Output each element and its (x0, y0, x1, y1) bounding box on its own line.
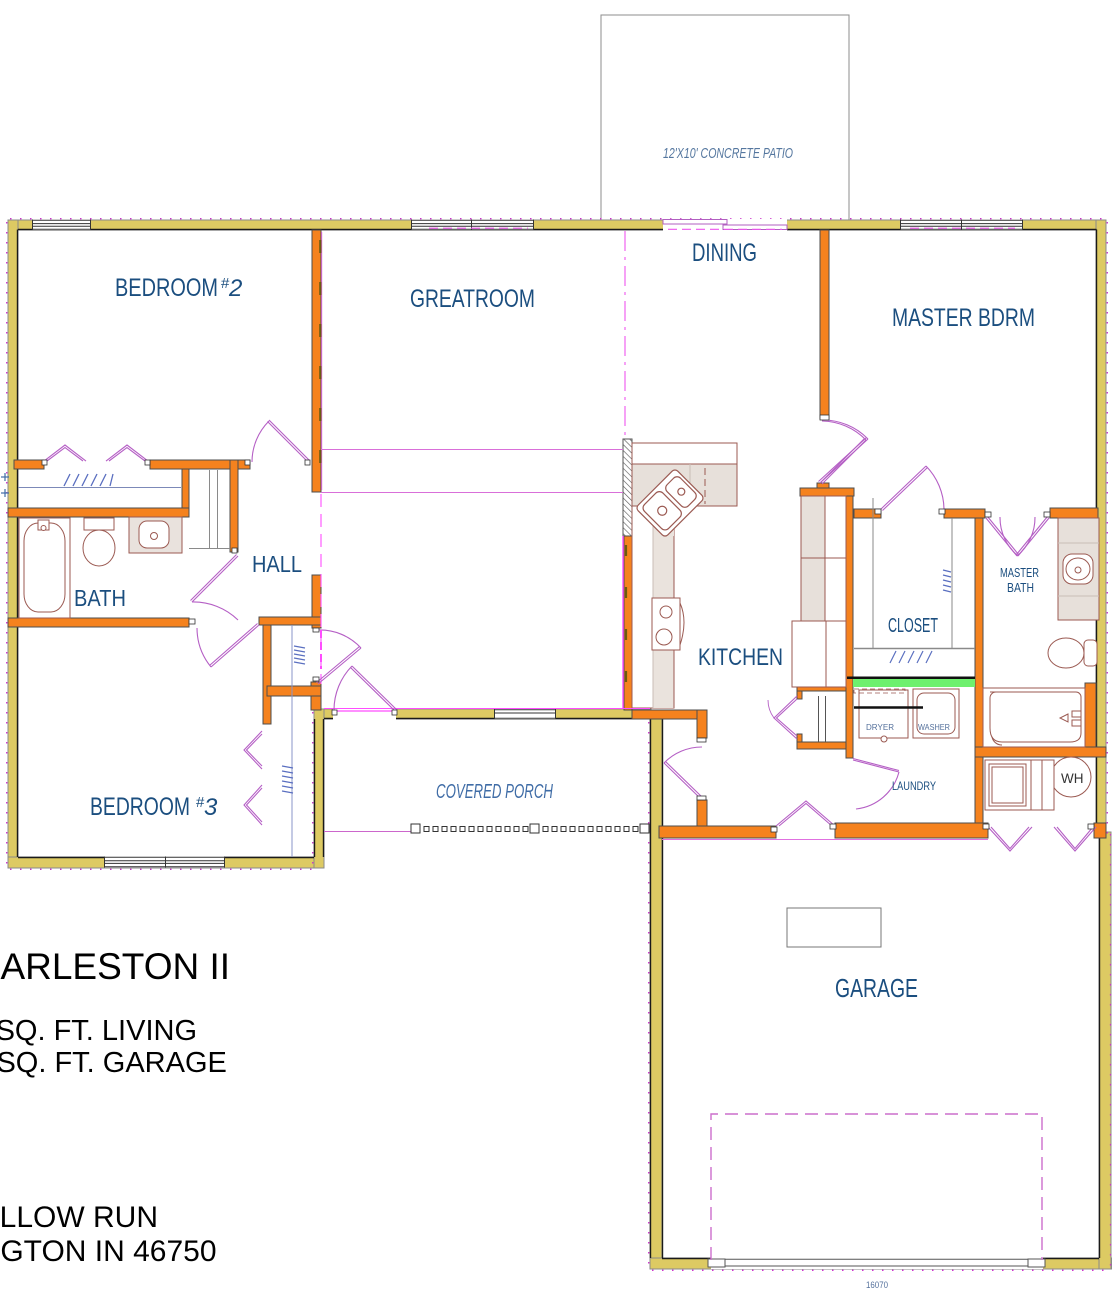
svg-text:CLOSET: CLOSET (888, 615, 938, 637)
svg-text:2: 2 (228, 275, 242, 302)
svg-text:1404 SQ. FT. LIVING: 1404 SQ. FT. LIVING (0, 1015, 197, 1047)
svg-text:BATH: BATH (1007, 580, 1034, 595)
svg-text:12'X10' CONCRETE PATIO: 12'X10' CONCRETE PATIO (663, 145, 793, 162)
svg-text:16070: 16070 (866, 1280, 888, 1291)
svg-text:KITCHEN: KITCHEN (698, 644, 783, 671)
svg-text:GARAGE: GARAGE (835, 973, 918, 1003)
svg-text:LAUNDRY: LAUNDRY (892, 779, 936, 793)
svg-text:WH: WH (1061, 771, 1084, 786)
svg-text:GREATROOM: GREATROOM (410, 285, 535, 313)
svg-text:BEDROOM: BEDROOM (115, 274, 218, 302)
svg-text:CHARLESTON II: CHARLESTON II (0, 946, 230, 987)
svg-text:HUNTINGTON IN 46750: HUNTINGTON IN 46750 (0, 1235, 217, 1268)
svg-text:DRYER: DRYER (866, 723, 894, 732)
svg-text:MASTER: MASTER (1000, 565, 1039, 580)
svg-text:DINING: DINING (692, 239, 757, 267)
svg-text:WILLOW RUN: WILLOW RUN (0, 1201, 158, 1234)
svg-text:BEDROOM: BEDROOM (90, 793, 190, 821)
svg-text:WASHER: WASHER (918, 723, 950, 732)
svg-text:COVERED PORCH: COVERED PORCH (436, 781, 553, 803)
svg-text:3: 3 (204, 794, 218, 821)
svg-text:BATH: BATH (74, 585, 126, 611)
svg-text:576 SQ. FT. GARAGE: 576 SQ. FT. GARAGE (0, 1047, 227, 1079)
svg-text:MASTER BDRM: MASTER BDRM (892, 304, 1035, 332)
svg-text:HALL: HALL (252, 551, 302, 577)
